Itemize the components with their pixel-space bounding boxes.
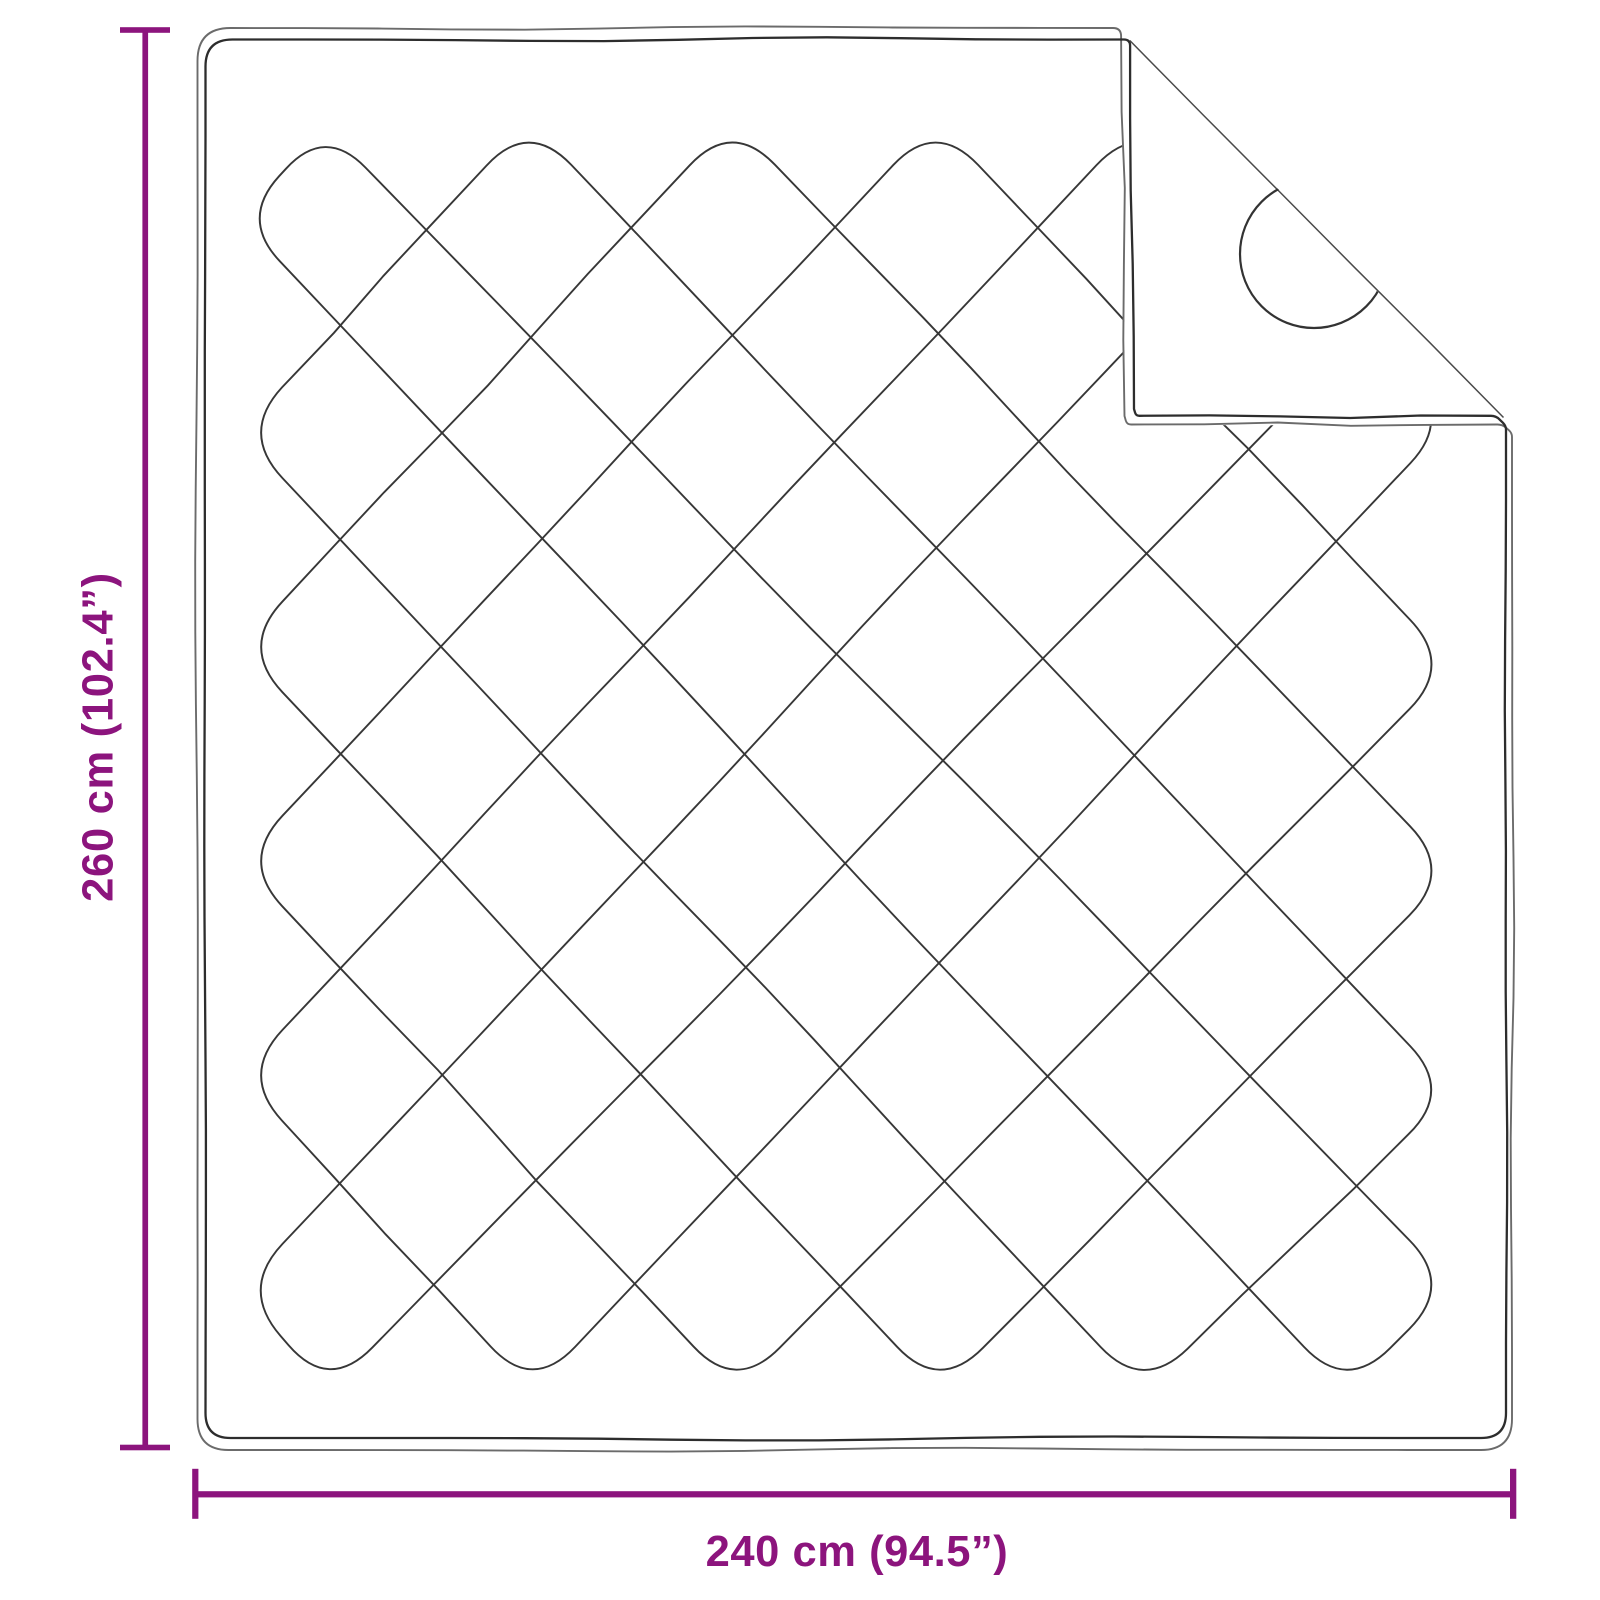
svg-text:240 cm (94.5”): 240 cm (94.5”) (706, 1528, 1009, 1576)
svg-text:260 cm (102.4”): 260 cm (102.4”) (75, 572, 123, 902)
